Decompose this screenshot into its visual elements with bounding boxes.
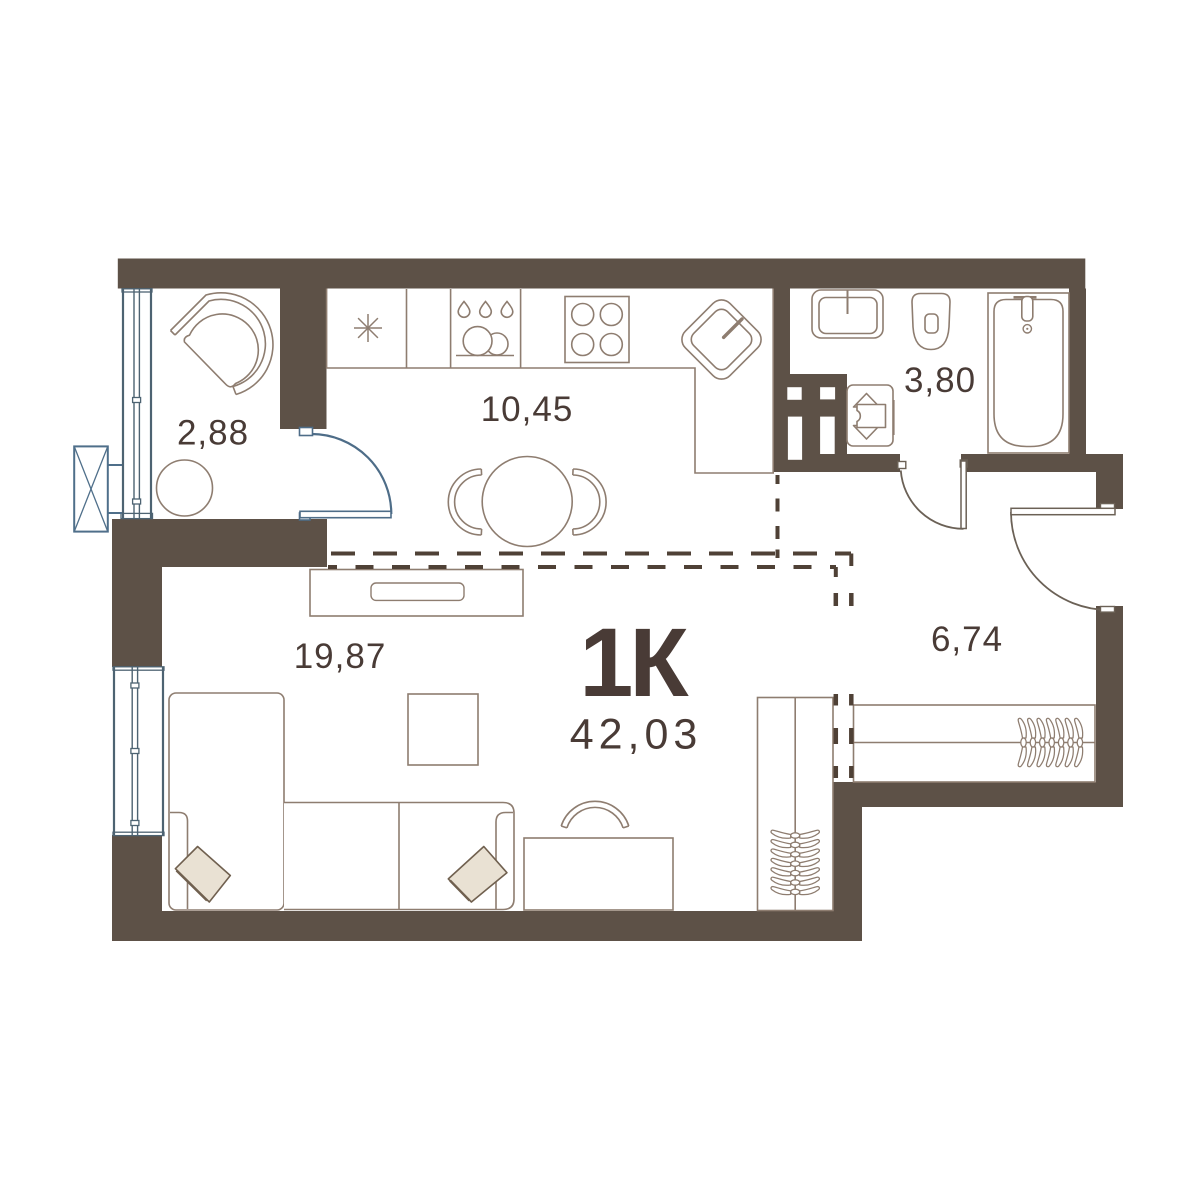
- svg-text:19,87: 19,87: [294, 637, 387, 676]
- svg-text:3,80: 3,80: [904, 361, 976, 400]
- svg-text:42,03: 42,03: [570, 711, 703, 759]
- svg-text:6,74: 6,74: [931, 620, 1003, 659]
- svg-text:10,45: 10,45: [481, 390, 574, 429]
- svg-text:1К: 1К: [579, 608, 689, 717]
- svg-text:2,88: 2,88: [177, 414, 249, 453]
